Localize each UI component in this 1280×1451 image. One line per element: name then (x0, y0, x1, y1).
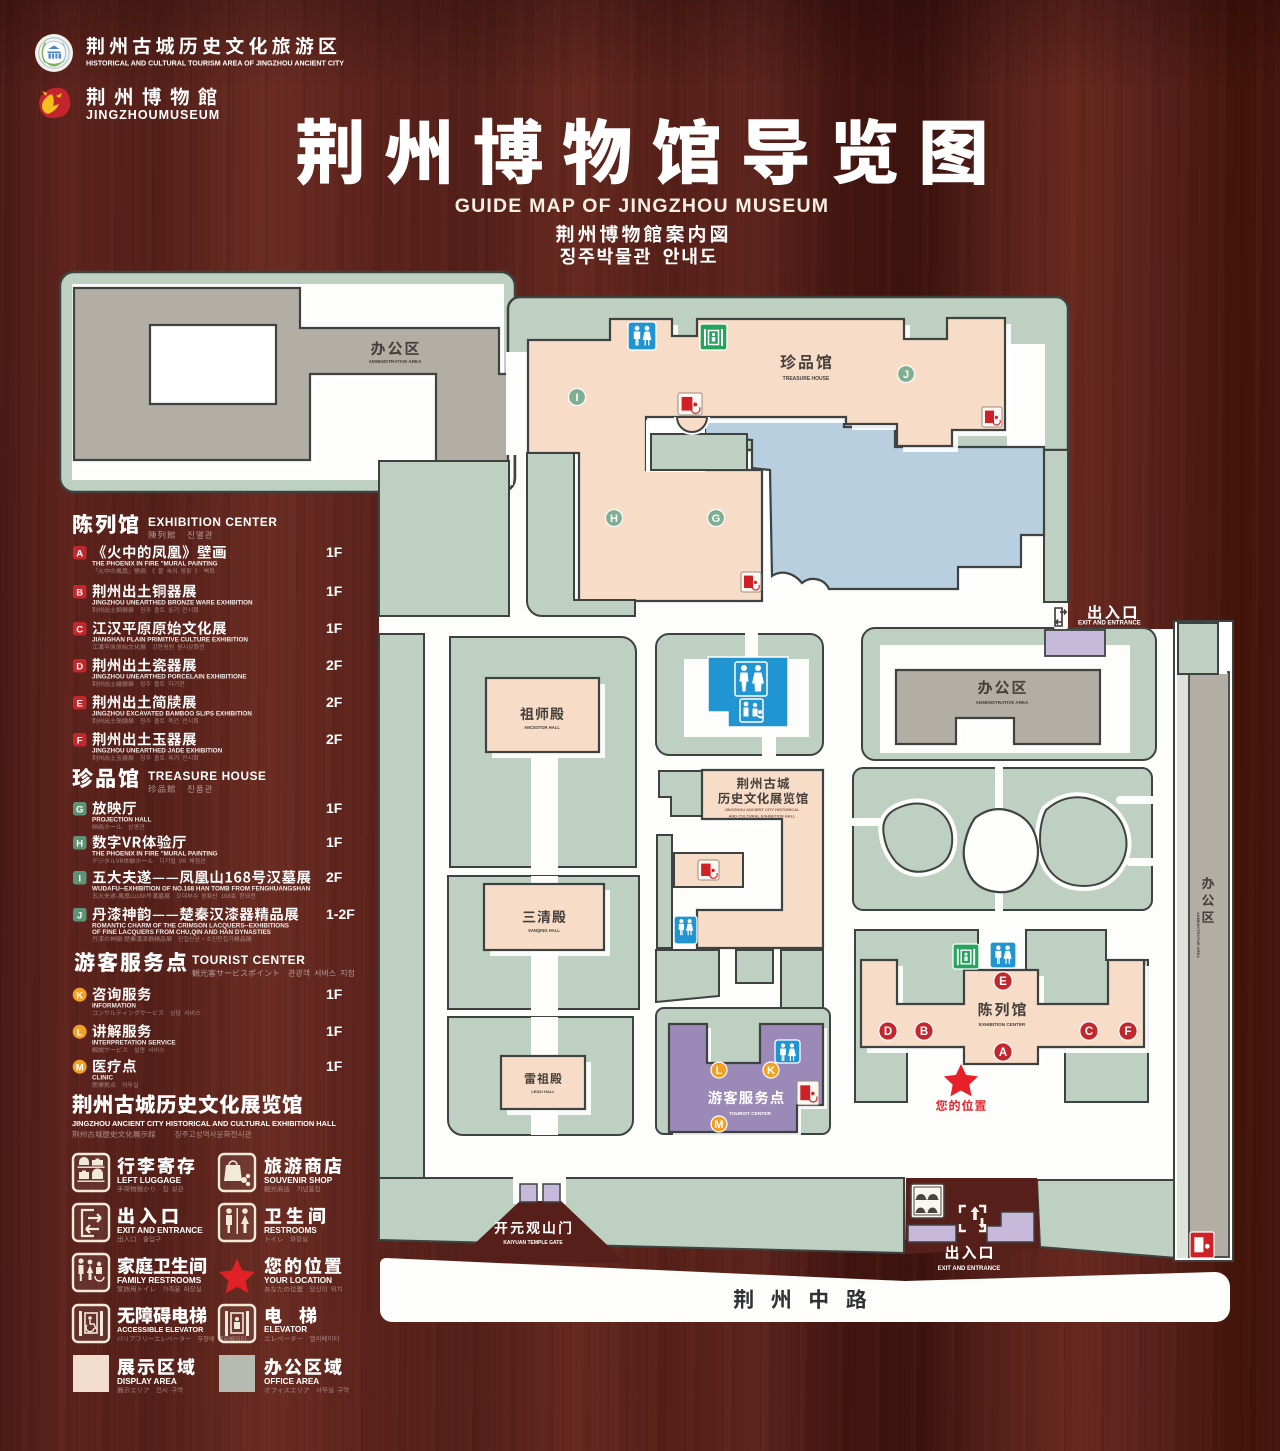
svg-text:CLINIC: CLINIC (92, 1075, 113, 1082)
svg-text:EXIT AND ENTRANCE: EXIT AND ENTRANCE (938, 1266, 1001, 1272)
svg-text:F: F (77, 735, 83, 746)
svg-text:TREASURE HOUSE: TREASURE HOUSE (783, 376, 830, 382)
svg-text:I: I (575, 392, 578, 404)
svg-text:1F: 1F (326, 544, 343, 560)
svg-text:H: H (76, 838, 83, 849)
svg-text:ADMINISTRATIVE AREA: ADMINISTRATIVE AREA (369, 359, 423, 364)
svg-text:HISTORICAL AND CULTURAL TOURIS: HISTORICAL AND CULTURAL TOURISM AREA OF … (86, 60, 344, 68)
svg-text:JINGZHOU UNEARTHED JADE EXHIBI: JINGZHOU UNEARTHED JADE EXHIBITION (92, 748, 223, 755)
svg-text:1F: 1F (326, 583, 343, 599)
svg-text:L: L (77, 1027, 83, 1038)
svg-text:K: K (767, 1065, 775, 1077)
svg-text:G: G (76, 804, 83, 815)
svg-text:YOUR LOCATION: YOUR LOCATION (264, 1276, 332, 1285)
svg-text:TOURIST CENTER: TOURIST CENTER (192, 953, 306, 967)
svg-text:1F: 1F (326, 834, 343, 850)
svg-text:ACCESSIBLE ELEVATOR: ACCESSIBLE ELEVATOR (117, 1325, 204, 1334)
svg-text:K: K (76, 990, 83, 1001)
svg-text:JIANGHAN PLAIN PRIMITIVE CULTU: JIANGHAN PLAIN PRIMITIVE CULTURE EXHIBIT… (92, 637, 248, 644)
svg-text:J: J (903, 369, 909, 381)
svg-text:LEFT LUGGAGE: LEFT LUGGAGE (117, 1176, 182, 1185)
svg-text:AND CULTURAL EXHIBITION HALL: AND CULTURAL EXHIBITION HALL (729, 814, 797, 819)
svg-text:F: F (1124, 1026, 1131, 1038)
svg-text:JINGZHOU ANCIENT CITY HISTORIC: JINGZHOU ANCIENT CITY HISTORICAL AND CUL… (72, 1119, 336, 1128)
svg-text:A: A (999, 1047, 1007, 1059)
svg-text:1-2F: 1-2F (326, 906, 355, 922)
svg-text:THE PHOENIX IN FIRE "MURAL PAI: THE PHOENIX IN FIRE "MURAL PAINTING (92, 851, 218, 858)
svg-text:2F: 2F (326, 731, 343, 747)
svg-text:G: G (712, 513, 721, 525)
svg-text:OFFICE AREA: OFFICE AREA (264, 1377, 319, 1386)
svg-text:E: E (77, 698, 83, 709)
svg-text:2F: 2F (326, 694, 343, 710)
svg-text:SOUVENIR SHOP: SOUVENIR SHOP (264, 1176, 333, 1185)
svg-text:I: I (78, 873, 81, 884)
svg-text:L: L (716, 1065, 723, 1077)
svg-text:EXHIBITION CENTER: EXHIBITION CENTER (148, 515, 278, 529)
svg-text:INTERPRETATION SERVICE: INTERPRETATION SERVICE (92, 1040, 176, 1047)
svg-text:ADMINISTRATIVE AREA: ADMINISTRATIVE AREA (976, 700, 1030, 705)
svg-text:ELEVATOR: ELEVATOR (264, 1325, 307, 1334)
svg-text:GUIDE MAP OF JINGZHOU MUSEUM: GUIDE MAP OF JINGZHOU MUSEUM (455, 195, 830, 217)
svg-text:EXHIBITION CENTER: EXHIBITION CENTER (979, 1022, 1026, 1027)
svg-text:INFORMATION: INFORMATION (92, 1003, 136, 1010)
svg-text:2F: 2F (326, 657, 343, 673)
svg-text:EXIT AND ENTRANCE: EXIT AND ENTRANCE (1078, 621, 1141, 627)
svg-text:D: D (884, 1026, 892, 1038)
svg-text:JINGZHOU ANCIENT CITY HISTORIC: JINGZHOU ANCIENT CITY HISTORICAL (724, 807, 800, 812)
svg-text:1F: 1F (326, 1023, 343, 1039)
svg-text:TREASURE HOUSE: TREASURE HOUSE (148, 769, 267, 783)
svg-text:1F: 1F (326, 800, 343, 816)
svg-text:OF FINE LACQUERS FROM CHU,QIN: OF FINE LACQUERS FROM CHU,QIN AND HAN DY… (92, 929, 271, 936)
svg-text:2F: 2F (326, 869, 343, 885)
svg-text:JINGZHOU UNEARTHED BRONZE WARE: JINGZHOU UNEARTHED BRONZE WARE EXHIBITIO… (92, 600, 253, 607)
svg-text:WUDAFU--EXHIBITION OF NO.168 H: WUDAFU--EXHIBITION OF NO.168 HAN TOMB FR… (92, 886, 311, 893)
svg-text:JINGZHOUMUSEUM: JINGZHOUMUSEUM (86, 108, 220, 122)
svg-text:1F: 1F (326, 986, 343, 1002)
svg-text:H: H (610, 513, 618, 525)
svg-text:JINGZHOU EXCAVATED BAMBOO SLIP: JINGZHOU EXCAVATED BAMBOO SLIPS EXHIBITI… (92, 711, 252, 718)
svg-text:FAMILY RESTROOMS: FAMILY RESTROOMS (117, 1276, 202, 1285)
svg-text:PROJECTION HALL: PROJECTION HALL (92, 817, 152, 824)
svg-text:C: C (1085, 1026, 1093, 1038)
svg-text:ANCESTOR HALL: ANCESTOR HALL (524, 725, 560, 730)
svg-text:C: C (76, 624, 83, 635)
svg-text:JINGZHOU UNEARTHED PORCELAIN E: JINGZHOU UNEARTHED PORCELAIN EXHIBITIONE (92, 674, 247, 681)
svg-text:E: E (999, 976, 1007, 988)
svg-text:M: M (714, 1119, 723, 1131)
svg-text:SANQING HALL: SANQING HALL (528, 928, 560, 933)
svg-text:DISPLAY AREA: DISPLAY AREA (117, 1377, 177, 1386)
svg-text:B: B (76, 587, 83, 598)
svg-text:1F: 1F (326, 620, 343, 636)
svg-text:A: A (76, 548, 83, 559)
svg-text:LEIZU HALL: LEIZU HALL (531, 1089, 555, 1094)
svg-text:EXIT AND ENTRANCE: EXIT AND ENTRANCE (117, 1226, 203, 1235)
svg-text:TOURIST CENTER: TOURIST CENTER (729, 1111, 772, 1117)
svg-text:B: B (920, 1026, 928, 1038)
svg-text:1F: 1F (326, 1058, 343, 1074)
svg-text:RESTROOMS: RESTROOMS (264, 1226, 317, 1235)
svg-text:KAIYUAN TEMPLE GATE: KAIYUAN TEMPLE GATE (503, 1240, 563, 1246)
svg-text:D: D (76, 661, 83, 672)
svg-text:J: J (77, 910, 82, 921)
svg-text:ADMINISTRATIVE AREA: ADMINISTRATIVE AREA (1196, 912, 1201, 958)
svg-text:M: M (76, 1062, 84, 1073)
svg-text:THE PHOENIX IN FIRE "MURAL PAI: THE PHOENIX IN FIRE "MURAL PAINTING (92, 561, 218, 568)
